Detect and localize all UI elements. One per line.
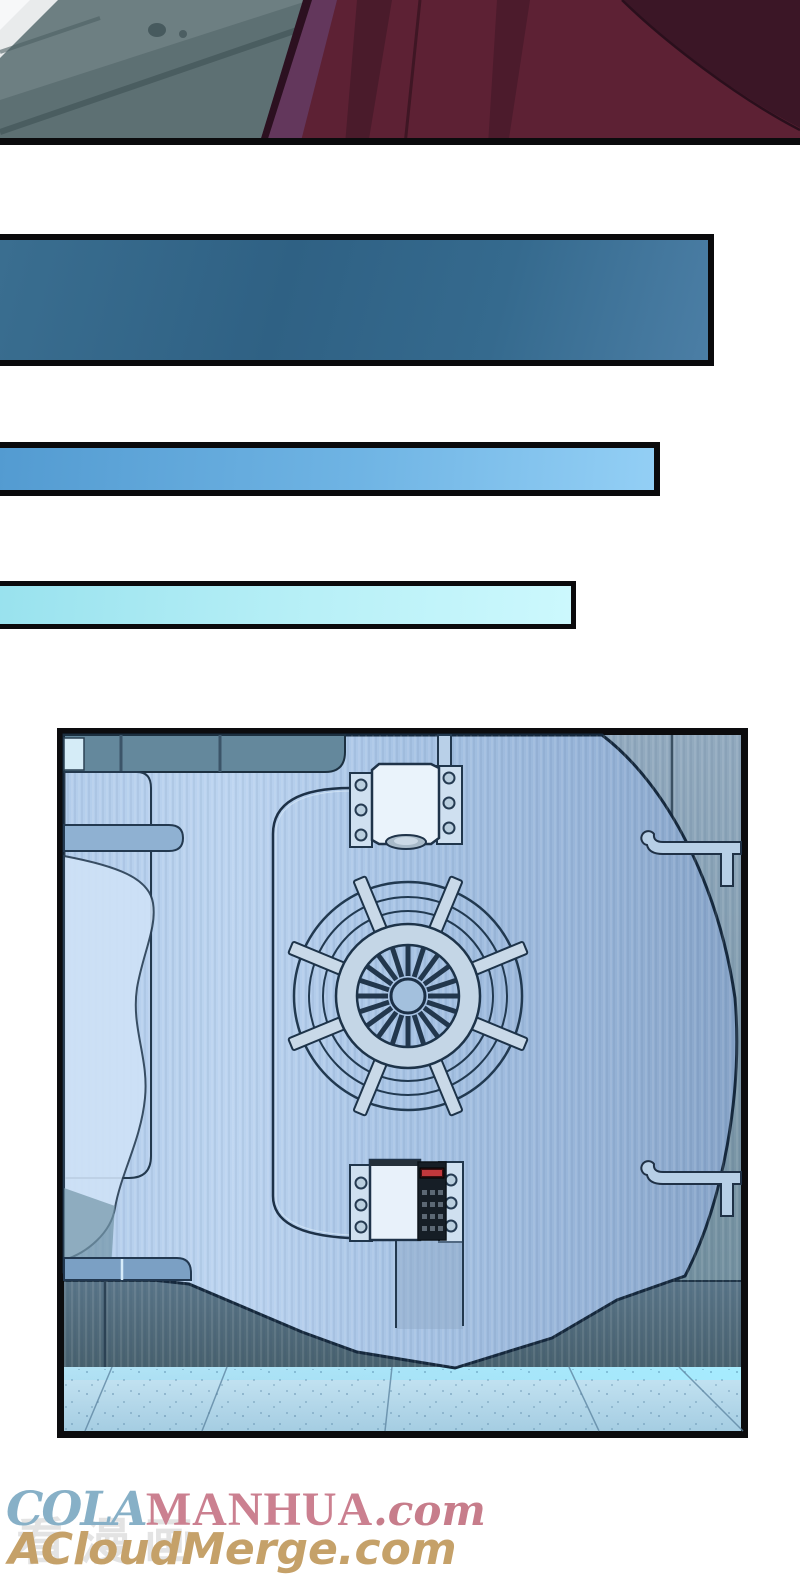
wheel-hub — [391, 979, 425, 1013]
hinge-pipe — [438, 735, 451, 769]
bolt-icon — [444, 773, 455, 784]
bolt-icon — [356, 1200, 367, 1211]
hinge-cylinder-highlight — [394, 837, 418, 845]
left-lower-step — [64, 1258, 191, 1280]
floor-stain-small — [179, 30, 187, 38]
bolt-icon — [356, 830, 367, 841]
bolt-icon — [446, 1198, 457, 1209]
watermark-acloudmerge: ACloudMerge.com — [8, 1524, 457, 1575]
panel-border-bottom — [0, 138, 800, 145]
keypad-led — [422, 1170, 442, 1176]
floor-stain — [148, 23, 166, 37]
manhua-page: 看漫画 COLAMANHUA.com ACloudMerge.com — [0, 0, 800, 1578]
bolt-icon — [356, 1222, 367, 1233]
bolt-icon — [356, 1178, 367, 1189]
bolt-icon — [356, 780, 367, 791]
vault-top-hinge — [350, 764, 462, 849]
top-groove-band — [64, 735, 345, 772]
caption-bar-3 — [0, 581, 576, 629]
bolt-icon — [444, 798, 455, 809]
top-band-light-tab — [64, 738, 84, 770]
keypad-shaft — [396, 1241, 463, 1329]
panel-vault-scene — [57, 728, 748, 1438]
caption-bar-2 — [0, 442, 660, 496]
bolt-icon — [444, 823, 455, 834]
bolt-icon — [356, 805, 367, 816]
bolt-icon — [446, 1221, 457, 1232]
floor-speckle-texture — [64, 1369, 741, 1431]
panel-top-drape-scene — [0, 0, 800, 145]
left-ledge — [64, 825, 183, 851]
bolt-icon — [446, 1175, 457, 1186]
caption-bar-1 — [0, 234, 714, 366]
